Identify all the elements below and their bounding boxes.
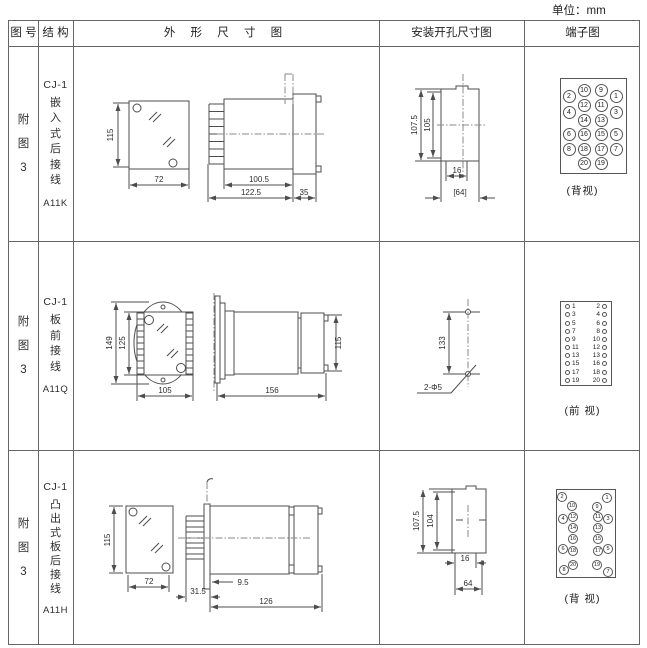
terminal-hole [565, 378, 570, 383]
terminal-row-1-2: 12 [561, 303, 611, 310]
terminal-hole [602, 304, 607, 309]
terminal-5: 5 [610, 128, 623, 141]
svg-text:35: 35 [300, 188, 309, 197]
unit-label: 单位：mm [552, 2, 606, 18]
terminal-hole [602, 370, 607, 375]
svg-text:105: 105 [423, 118, 432, 132]
terminal-13: 13 [595, 114, 608, 127]
terminal-6: 6 [563, 128, 576, 141]
terminal-6: 6 [558, 544, 568, 554]
terminal-15: 15 [595, 128, 608, 141]
terminal-11: 11 [593, 512, 603, 522]
terminal-17: 17 [595, 143, 608, 156]
svg-text:115: 115 [103, 533, 112, 546]
terminal-hole [565, 361, 570, 366]
terminal-5: 5 [603, 544, 613, 554]
svg-text:2-Φ5: 2-Φ5 [424, 383, 442, 392]
header-fig-no: 图 号 [9, 21, 38, 46]
svg-text:126: 126 [259, 597, 273, 606]
svg-text:104: 104 [426, 514, 435, 528]
terminal-13: 13 [593, 523, 603, 533]
terminal-14: 14 [568, 523, 578, 533]
svg-text:16: 16 [461, 554, 470, 563]
terminal-15: 15 [593, 534, 603, 544]
terminal-12: 12 [568, 512, 578, 522]
header-terminal: 端子图 [524, 21, 641, 46]
terminal-19: 19 [592, 560, 602, 570]
terminal-hole [565, 353, 570, 358]
svg-text:100.5: 100.5 [249, 175, 270, 184]
svg-text:105: 105 [158, 386, 172, 395]
terminal-row-19-20: 1920 [561, 377, 611, 384]
svg-text:133: 133 [438, 336, 447, 350]
svg-text:64: 64 [464, 579, 473, 588]
terminal-18: 18 [578, 143, 591, 156]
terminal-row-17-18: 1718 [561, 369, 611, 376]
datasheet-page: 单位：mm 图 号 结 构 外 形 尺 寸 图 安装开孔尺寸图 端子图 附 图 … [0, 0, 647, 648]
row2-fig-no: 附 图 3 [9, 241, 38, 450]
svg-text:72: 72 [155, 175, 164, 184]
terminal-14: 14 [578, 114, 591, 127]
terminal-9: 9 [595, 84, 608, 97]
terminal-20: 20 [578, 157, 591, 170]
terminal-hole [602, 353, 607, 358]
terminal-9: 9 [592, 502, 602, 512]
svg-text:16: 16 [453, 166, 462, 175]
install-drawing-a11k: 107.5 105 16 [64] [379, 46, 524, 241]
header-install: 安装开孔尺寸图 [379, 21, 524, 46]
terminal-17: 17 [593, 546, 603, 556]
svg-text:31.5: 31.5 [190, 587, 206, 596]
terminal-diagram-a11k: (背视) 1092112114314136161558181772019 [524, 46, 641, 241]
terminal-hole [565, 304, 570, 309]
terminal-hole [602, 337, 607, 342]
terminal-7: 7 [610, 143, 623, 156]
terminal-row-13-13: 1313 [561, 352, 611, 359]
header-outline: 外 形 尺 寸 图 [73, 21, 379, 46]
svg-text:[64]: [64] [453, 188, 466, 197]
row2-structure: CJ-1 板 前 接 线 A11Q [38, 241, 73, 450]
terminal-3: 3 [610, 106, 623, 119]
svg-text:9.5: 9.5 [237, 578, 249, 587]
terminal-18: 18 [568, 546, 578, 556]
terminal-12: 12 [578, 99, 591, 112]
terminal-20: 20 [568, 560, 578, 570]
terminal-4: 4 [563, 106, 576, 119]
svg-text:107.5: 107.5 [412, 510, 421, 531]
terminal-hole [602, 345, 607, 350]
svg-text:125: 125 [118, 336, 127, 350]
terminal-10: 10 [578, 84, 591, 97]
svg-text:156: 156 [265, 386, 279, 395]
svg-text:107.5: 107.5 [410, 114, 419, 135]
terminal-3: 3 [603, 514, 613, 524]
terminal-diagram-a11h: (背 视) 2110941211314131615618175201987 [524, 450, 641, 646]
terminal-hole [602, 312, 607, 317]
terminal-8: 8 [559, 565, 569, 575]
outline-drawing-a11q: 149 125 105 115 156 [73, 241, 379, 450]
outline-drawing-a11h: 115 72 9.5 31.5 126 [73, 450, 379, 646]
terminal-row-11-12: 1112 [561, 344, 611, 351]
row1-fig-no: 附 图 3 [9, 46, 38, 241]
terminal-16: 16 [578, 128, 591, 141]
terminal-4: 4 [558, 514, 568, 524]
terminal-hole [602, 361, 607, 366]
row3-structure: CJ-1 凸 出 式 板 后 接 线 A11H [38, 450, 73, 646]
terminal-diagram-a11q: 1234567891011121313151617181920 (前 视) [524, 241, 641, 450]
terminal-16: 16 [568, 534, 578, 544]
install-drawing-a11q: 133 2-Φ5 [379, 241, 524, 450]
terminal-2: 2 [557, 492, 567, 502]
terminal-hole [565, 370, 570, 375]
terminal-row-5-6: 56 [561, 320, 611, 327]
terminal-10: 10 [567, 501, 577, 511]
terminal-row-9-10: 910 [561, 336, 611, 343]
row1-structure: CJ-1 嵌 入 式 后 接 线 A11K [38, 46, 73, 241]
terminal-hole [565, 329, 570, 334]
terminal-7: 7 [603, 567, 613, 577]
terminal-11: 11 [595, 99, 608, 112]
terminal-hole [602, 378, 607, 383]
header-structure: 结 构 [38, 21, 73, 46]
terminal-hole [565, 345, 570, 350]
spec-table: 图 号 结 构 外 形 尺 寸 图 安装开孔尺寸图 端子图 附 图 3 CJ-1… [8, 20, 640, 645]
terminal-19: 19 [595, 157, 608, 170]
terminal-row-15-16: 1516 [561, 360, 611, 367]
terminal-hole [565, 337, 570, 342]
terminal-hole [602, 329, 607, 334]
terminal-view-caption: (背 视) [524, 591, 641, 606]
terminal-2: 2 [563, 90, 576, 103]
svg-text:122.5: 122.5 [241, 188, 262, 197]
terminal-view-caption: (背视) [524, 183, 641, 198]
svg-text:115: 115 [334, 336, 343, 349]
terminal-8: 8 [563, 143, 576, 156]
svg-text:149: 149 [105, 336, 114, 350]
terminal-hole [565, 312, 570, 317]
terminal-1: 1 [610, 90, 623, 103]
terminal-hole [602, 321, 607, 326]
terminal-row-7-8: 78 [561, 328, 611, 335]
terminal-hole [565, 321, 570, 326]
svg-text:115: 115 [106, 128, 115, 141]
svg-text:72: 72 [145, 577, 154, 586]
row3-fig-no: 附 图 3 [9, 450, 38, 646]
terminal-view-caption: (前 视) [524, 403, 641, 418]
outline-drawing-a11k: 115 72 100.5 122.5 35 [73, 46, 379, 241]
terminal-1: 1 [602, 493, 612, 503]
terminal-row-3-4: 34 [561, 311, 611, 318]
install-drawing-a11h: 107.5 104 16 64 [379, 450, 524, 646]
